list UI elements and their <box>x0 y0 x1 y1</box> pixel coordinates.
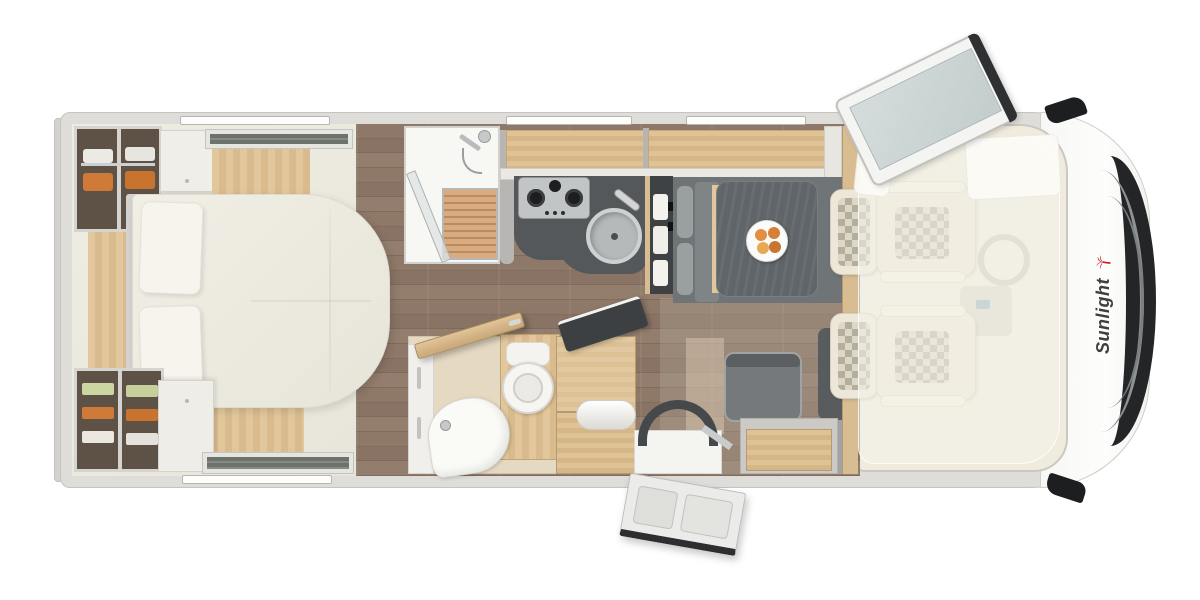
folded-clothes-white-2 <box>126 433 158 445</box>
cabinet-handle-2 <box>417 417 421 439</box>
cabinet-handle-dot <box>185 179 189 183</box>
hanging-shirt-white <box>83 149 113 163</box>
fruit-2 <box>768 227 780 239</box>
side-seat-backrest <box>726 354 800 367</box>
sideboard <box>740 418 838 474</box>
door-bin-1 <box>632 485 678 529</box>
shower-tray <box>442 188 498 260</box>
fridge-bin-2 <box>653 226 668 254</box>
gas-hob <box>518 177 590 219</box>
cabinet-handle-1 <box>417 367 421 389</box>
awning-rail-3 <box>686 116 806 125</box>
awning-rail-2 <box>506 116 632 125</box>
shower-head-icon <box>478 130 491 143</box>
burner-right <box>565 189 583 207</box>
roof-skylight-rear <box>205 129 353 149</box>
bed-head-deck <box>212 146 310 198</box>
hanging-shirt-white-2 <box>125 147 155 161</box>
wardrobe-divider <box>117 129 121 229</box>
folded-clothes-orange <box>82 407 114 419</box>
burner-top <box>549 180 561 192</box>
bed-pillow-1 <box>138 201 203 295</box>
folded-clothes-green-2 <box>126 385 158 397</box>
folded-clothes-orange-2 <box>126 409 158 421</box>
awning-rail-1 <box>180 116 330 125</box>
wardrobe-shelves <box>74 368 164 472</box>
roof-skylight-front <box>202 452 354 474</box>
door-handle-icon <box>508 318 521 326</box>
toilet-bowl-ring <box>513 373 543 403</box>
hob-knobs <box>545 211 549 215</box>
toilet <box>502 362 554 414</box>
brand-logo-text: Sunlight <box>1093 278 1114 354</box>
refrigerator <box>645 176 673 294</box>
side-shelf-left <box>88 232 126 370</box>
fruit-4 <box>769 241 781 253</box>
bed-foot-deck <box>204 404 304 456</box>
wardrobe-divider-2 <box>118 371 122 469</box>
fridge-bin-3 <box>653 260 668 286</box>
door-bin-2 <box>680 494 734 540</box>
folded-clothes-white <box>82 431 114 443</box>
sink-drain <box>611 233 618 240</box>
fruit-1 <box>755 229 767 241</box>
basin-faucet-icon <box>440 420 451 431</box>
sideboard-front <box>746 429 832 471</box>
overhead-locker-kitchen <box>506 130 644 170</box>
palm-tree-icon <box>1094 254 1112 272</box>
fridge-bin-1 <box>653 194 668 220</box>
hanging-jacket-orange <box>83 173 113 191</box>
motorhome-floorplan: Sunlight <box>0 0 1200 600</box>
bench-back-pad-1 <box>677 186 693 238</box>
side-seat <box>724 352 802 422</box>
overhead-locker-endcap <box>824 126 842 180</box>
skylight-vent-2 <box>207 457 349 469</box>
duvet-fold <box>329 207 331 397</box>
skylight-vent <box>210 134 348 144</box>
fruit-3 <box>757 242 769 254</box>
cab-pillow-2 <box>964 134 1061 201</box>
kitchen-sink <box>586 208 642 264</box>
hanging-jacket-orange-2 <box>125 171 155 189</box>
fruit-plate <box>746 220 788 262</box>
burner-left <box>527 189 545 207</box>
awning-rail-4 <box>182 475 332 484</box>
towel-roll <box>576 400 636 430</box>
clothes-rail-icon <box>81 163 155 166</box>
duvet-seam <box>251 300 371 302</box>
cabinet-handle-dot-2 <box>185 399 189 403</box>
bench-back-pad-2 <box>677 243 693 295</box>
folded-clothes-green <box>82 383 114 395</box>
brand-logo: Sunlight <box>1089 229 1117 379</box>
